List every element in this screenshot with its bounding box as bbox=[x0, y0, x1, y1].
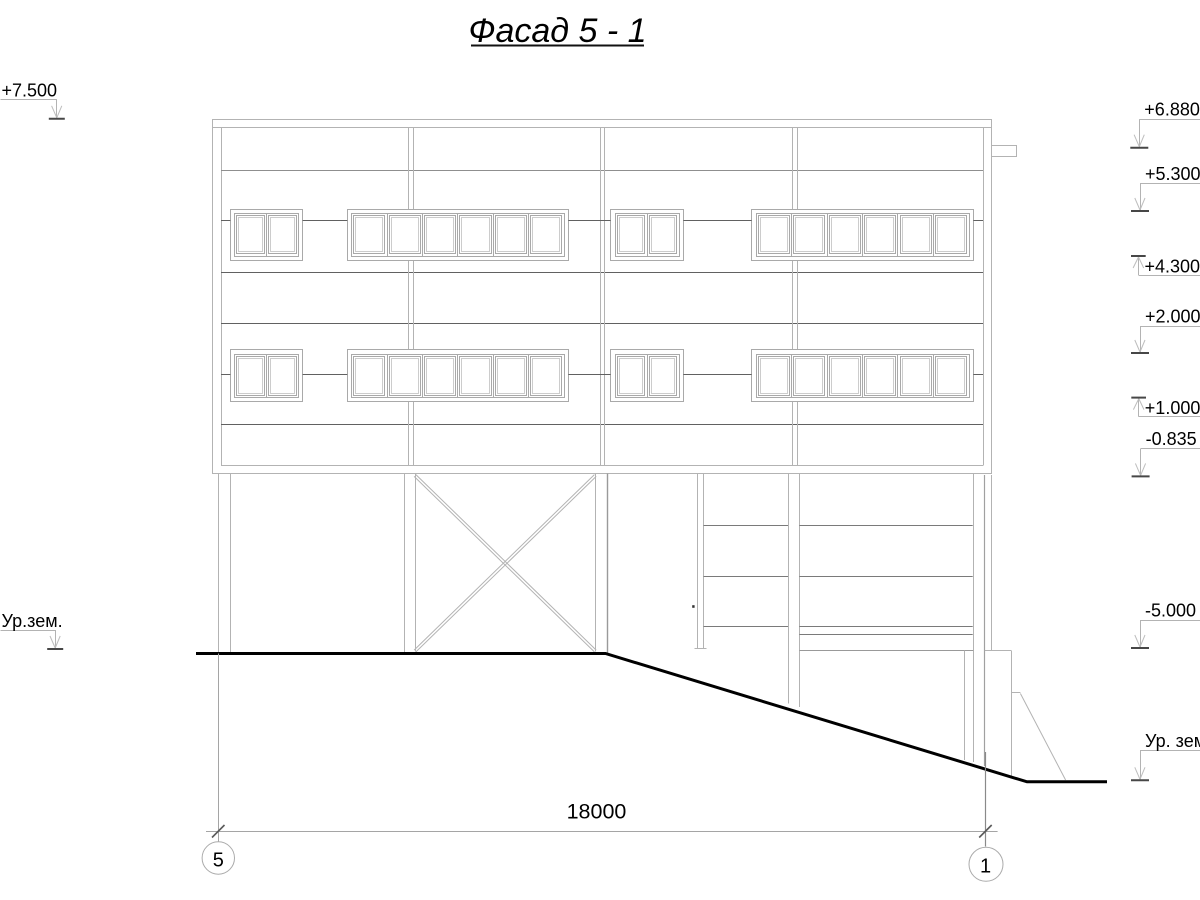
svg-text:+4.300: +4.300 bbox=[1145, 256, 1200, 276]
svg-text:Ур.зем.: Ур.зем. bbox=[2, 611, 63, 631]
svg-text:+1.000: +1.000 bbox=[1145, 398, 1200, 418]
svg-text:+5.300: +5.300 bbox=[1145, 164, 1200, 184]
svg-text:Фасад 5 - 1: Фасад 5 - 1 bbox=[468, 12, 646, 50]
svg-text:+6.880: +6.880 bbox=[1144, 100, 1200, 120]
svg-text:-5.000: -5.000 bbox=[1145, 601, 1196, 621]
svg-text:5: 5 bbox=[213, 849, 224, 871]
svg-text:Ур. земли: Ур. земли bbox=[1145, 731, 1200, 751]
svg-text:+2.000: +2.000 bbox=[1145, 307, 1200, 327]
svg-text:1: 1 bbox=[980, 855, 991, 877]
svg-text:+7.500: +7.500 bbox=[2, 80, 58, 100]
svg-text:18000: 18000 bbox=[567, 799, 627, 823]
svg-text:-0.835: -0.835 bbox=[1146, 429, 1197, 449]
